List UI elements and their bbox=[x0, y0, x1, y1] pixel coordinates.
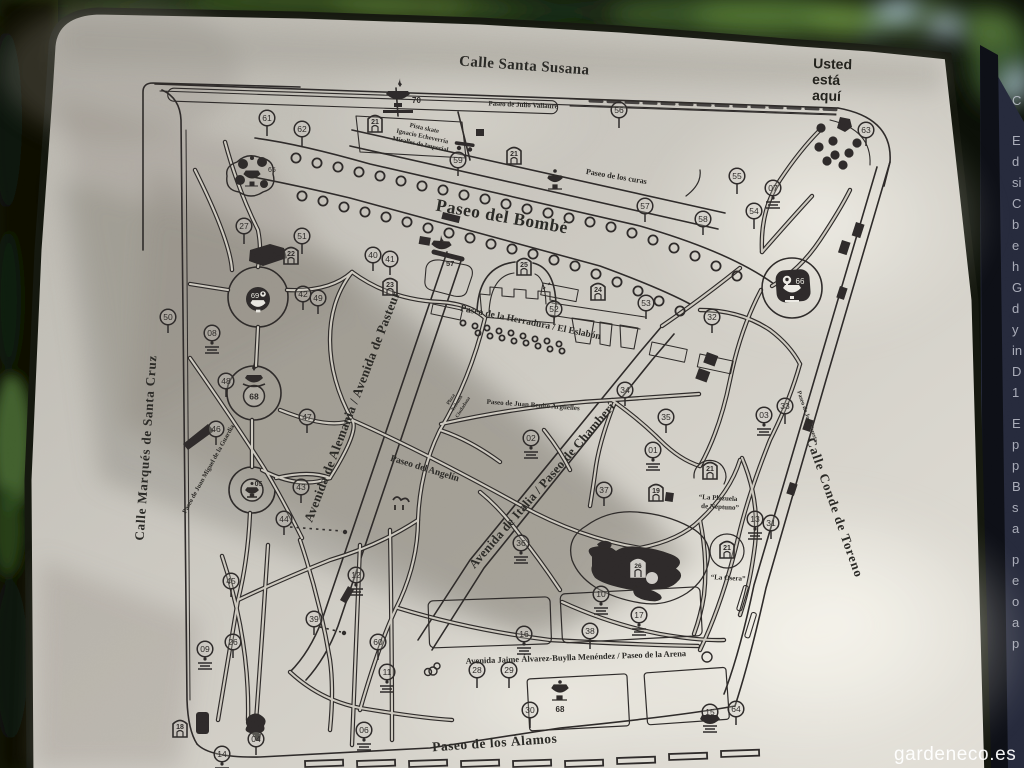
svg-text:gardeneco.es: gardeneco.es bbox=[894, 744, 1016, 765]
